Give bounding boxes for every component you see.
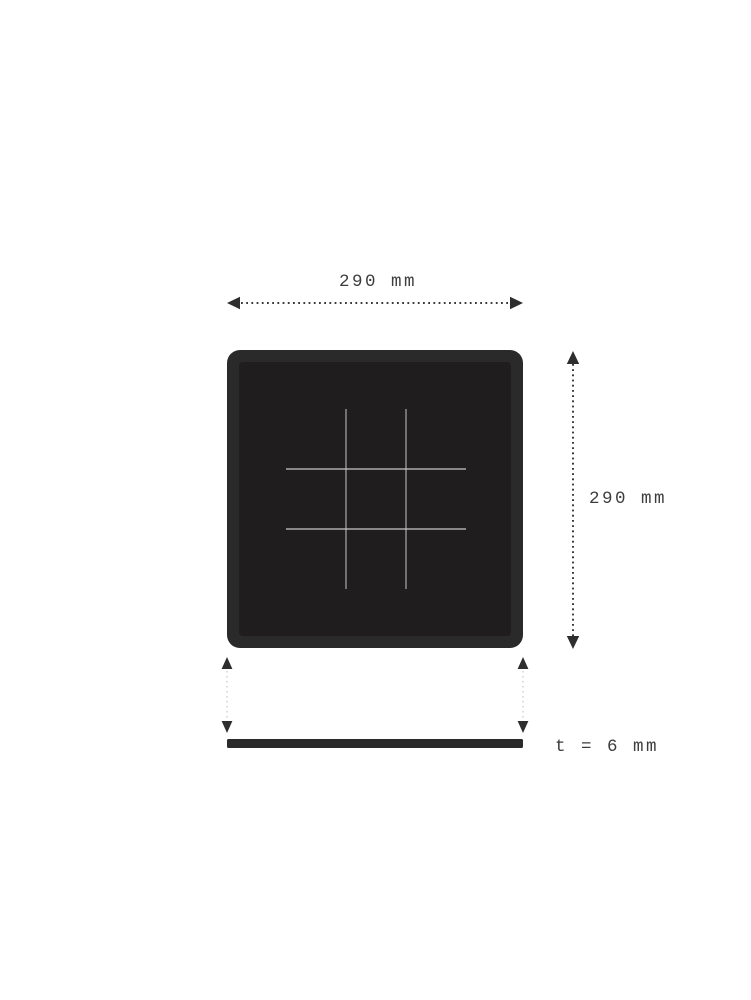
projection-arrows (222, 657, 529, 733)
technical-drawing-canvas: 290 mm 290 mm (0, 0, 751, 1000)
board-front-view (227, 350, 523, 648)
arrowhead-up-icon (567, 351, 579, 364)
projection-arrow-right (518, 657, 529, 733)
projection-arrow-left (222, 657, 233, 733)
arrowhead-down-icon (222, 721, 233, 733)
thickness-bar (227, 739, 523, 748)
arrowhead-left-icon (227, 297, 240, 309)
board-surface (239, 362, 511, 636)
height-dimension: 290 mm (567, 351, 667, 649)
thickness-dimension-label: t = 6 mm (555, 737, 659, 757)
arrowhead-down-icon (518, 721, 529, 733)
height-dimension-label: 290 mm (589, 489, 667, 509)
width-dimension-label: 290 mm (339, 272, 417, 292)
arrowhead-down-icon (567, 636, 579, 649)
board-side-view: t = 6 mm (227, 737, 659, 757)
drawing-svg: 290 mm 290 mm (0, 0, 751, 1000)
arrowhead-right-icon (510, 297, 523, 309)
arrowhead-up-icon (222, 657, 233, 669)
width-dimension: 290 mm (227, 272, 523, 309)
arrowhead-up-icon (518, 657, 529, 669)
